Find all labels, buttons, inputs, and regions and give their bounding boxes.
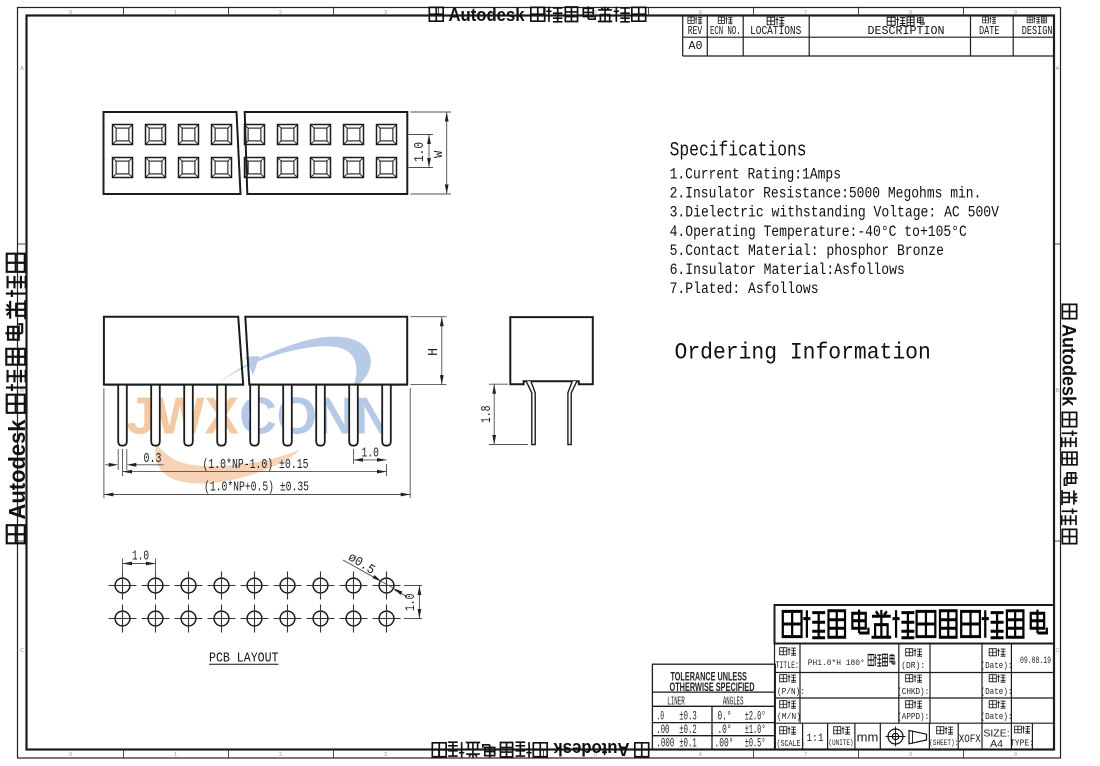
svg-text:8: 8 bbox=[909, 10, 912, 16]
svg-text:0: 0 bbox=[69, 10, 72, 16]
svg-text:H: H bbox=[427, 348, 442, 356]
svg-text:3.Dielectric withstanding Volt: 3.Dielectric withstanding Voltage: AC 50… bbox=[670, 204, 1000, 222]
svg-text:2: 2 bbox=[279, 10, 282, 16]
svg-text:(1.0*NP-1.0) ±0.15: (1.0*NP-1.0) ±0.15 bbox=[203, 457, 309, 473]
svg-text:(SHEET):: (SHEET): bbox=[929, 738, 958, 748]
svg-text:C: C bbox=[20, 648, 24, 654]
svg-text:1.0: 1.0 bbox=[413, 142, 428, 162]
svg-text:XOFX: XOFX bbox=[959, 734, 981, 746]
svg-text:LOCATIONS: LOCATIONS bbox=[750, 24, 801, 38]
svg-text:DATE: DATE bbox=[979, 24, 1000, 38]
svg-text:(Date):: (Date): bbox=[981, 686, 1013, 697]
svg-text:0.3: 0.3 bbox=[144, 451, 162, 467]
svg-text:PH1.0*H 180°: PH1.0*H 180° bbox=[808, 658, 865, 668]
svg-text:(M/N): (M/N) bbox=[777, 711, 801, 722]
svg-text:1.0: 1.0 bbox=[403, 594, 419, 611]
svg-text:7: 7 bbox=[804, 10, 807, 16]
svg-text:±0.1: ±0.1 bbox=[679, 736, 696, 750]
svg-text:mm: mm bbox=[857, 730, 879, 745]
svg-text:A: A bbox=[20, 66, 24, 72]
svg-text:A0: A0 bbox=[689, 39, 703, 53]
svg-text:(APPD):: (APPD): bbox=[897, 711, 929, 722]
svg-text:9: 9 bbox=[1014, 752, 1017, 758]
svg-text:3: 3 bbox=[384, 10, 387, 16]
svg-text:REV: REV bbox=[688, 24, 703, 38]
svg-text:(1.0*NP+0.5) ±0.35: (1.0*NP+0.5) ±0.35 bbox=[204, 480, 309, 496]
svg-text:9: 9 bbox=[1014, 10, 1017, 16]
svg-text:09.08.19: 09.08.19 bbox=[1020, 656, 1051, 667]
svg-text:2.Insulator Resistance:5000 Me: 2.Insulator Resistance:5000 Megohms min. bbox=[670, 185, 982, 203]
svg-text:5.Contact Material: phosphor B: 5.Contact Material: phosphor Bronze bbox=[670, 242, 944, 260]
svg-text:ANGLES: ANGLES bbox=[723, 694, 744, 708]
svg-text:1:1: 1:1 bbox=[807, 733, 824, 745]
svg-text:Ordering Information: Ordering Information bbox=[675, 340, 931, 367]
svg-text:(DR):: (DR): bbox=[901, 660, 925, 671]
svg-text:DESIGN: DESIGN bbox=[1022, 24, 1053, 38]
svg-text:2: 2 bbox=[279, 752, 282, 758]
svg-text:ECN NO.: ECN NO. bbox=[710, 24, 741, 38]
svg-text:0: 0 bbox=[69, 752, 72, 758]
svg-text:A4: A4 bbox=[990, 738, 1003, 750]
svg-text:(Date):: (Date): bbox=[981, 660, 1013, 671]
svg-text:±2.0°: ±2.0° bbox=[745, 710, 766, 724]
svg-text:.000: .000 bbox=[656, 736, 674, 750]
svg-text:1: 1 bbox=[174, 752, 177, 758]
svg-text:(SCALE): (SCALE) bbox=[777, 739, 805, 749]
svg-text:Autodesk: Autodesk bbox=[4, 419, 30, 519]
svg-text:A: A bbox=[1056, 66, 1060, 72]
svg-text:(Date):: (Date): bbox=[981, 711, 1013, 722]
svg-text:TITLE:: TITLE: bbox=[776, 661, 799, 672]
svg-text:W: W bbox=[432, 150, 446, 158]
svg-text:(CHKD):: (CHKD): bbox=[897, 686, 929, 697]
svg-text:1.0: 1.0 bbox=[362, 446, 379, 462]
svg-text:Specifications: Specifications bbox=[670, 140, 807, 163]
svg-text:7.Plated: Asfollows: 7.Plated: Asfollows bbox=[670, 280, 819, 298]
svg-text:6.Insulator Material:Asfollows: 6.Insulator Material:Asfollows bbox=[670, 261, 905, 279]
svg-text:1: 1 bbox=[174, 10, 177, 16]
svg-text:5: 5 bbox=[594, 10, 597, 16]
svg-text:Autodesk: Autodesk bbox=[553, 739, 630, 759]
svg-text:8: 8 bbox=[909, 752, 912, 758]
svg-text:.0°: .0° bbox=[718, 723, 732, 737]
svg-text:Autodesk: Autodesk bbox=[449, 5, 526, 25]
svg-text:1.0: 1.0 bbox=[132, 549, 149, 565]
svg-text:TYPE:: TYPE: bbox=[1010, 738, 1034, 749]
svg-text:DESCRIPTION: DESCRIPTION bbox=[868, 24, 945, 38]
svg-text:6: 6 bbox=[699, 752, 702, 758]
svg-text:.0: .0 bbox=[656, 710, 664, 724]
svg-text:(P/N):: (P/N): bbox=[777, 686, 805, 697]
svg-text:(UNITE): (UNITE) bbox=[829, 739, 854, 748]
svg-text:OTHERWISE SPECIFIED: OTHERWISE SPECIFIED bbox=[670, 680, 755, 694]
svg-text:3: 3 bbox=[384, 752, 387, 758]
svg-text:±0.5°: ±0.5° bbox=[745, 736, 766, 750]
svg-text:Autodesk: Autodesk bbox=[1058, 324, 1079, 406]
svg-text:1.8: 1.8 bbox=[479, 406, 495, 424]
svg-text:±0.3: ±0.3 bbox=[679, 710, 696, 724]
svg-text:B: B bbox=[20, 388, 24, 394]
svg-text:4.Operating Temperature:-40°C: 4.Operating Temperature:-40°C to+105°C bbox=[670, 223, 967, 241]
svg-text:0.°: 0.° bbox=[718, 710, 732, 724]
svg-text:C: C bbox=[1056, 648, 1060, 654]
svg-text:.00°: .00° bbox=[715, 736, 734, 750]
svg-text:6: 6 bbox=[699, 10, 702, 16]
svg-text:±0.2: ±0.2 bbox=[679, 723, 696, 737]
svg-text:1.Current Rating:1Amps: 1.Current Rating:1Amps bbox=[670, 166, 841, 184]
svg-text:LINER: LINER bbox=[667, 694, 684, 708]
svg-text:7: 7 bbox=[804, 752, 807, 758]
svg-text:.00: .00 bbox=[656, 723, 669, 737]
svg-text:±1.0°: ±1.0° bbox=[745, 723, 766, 737]
